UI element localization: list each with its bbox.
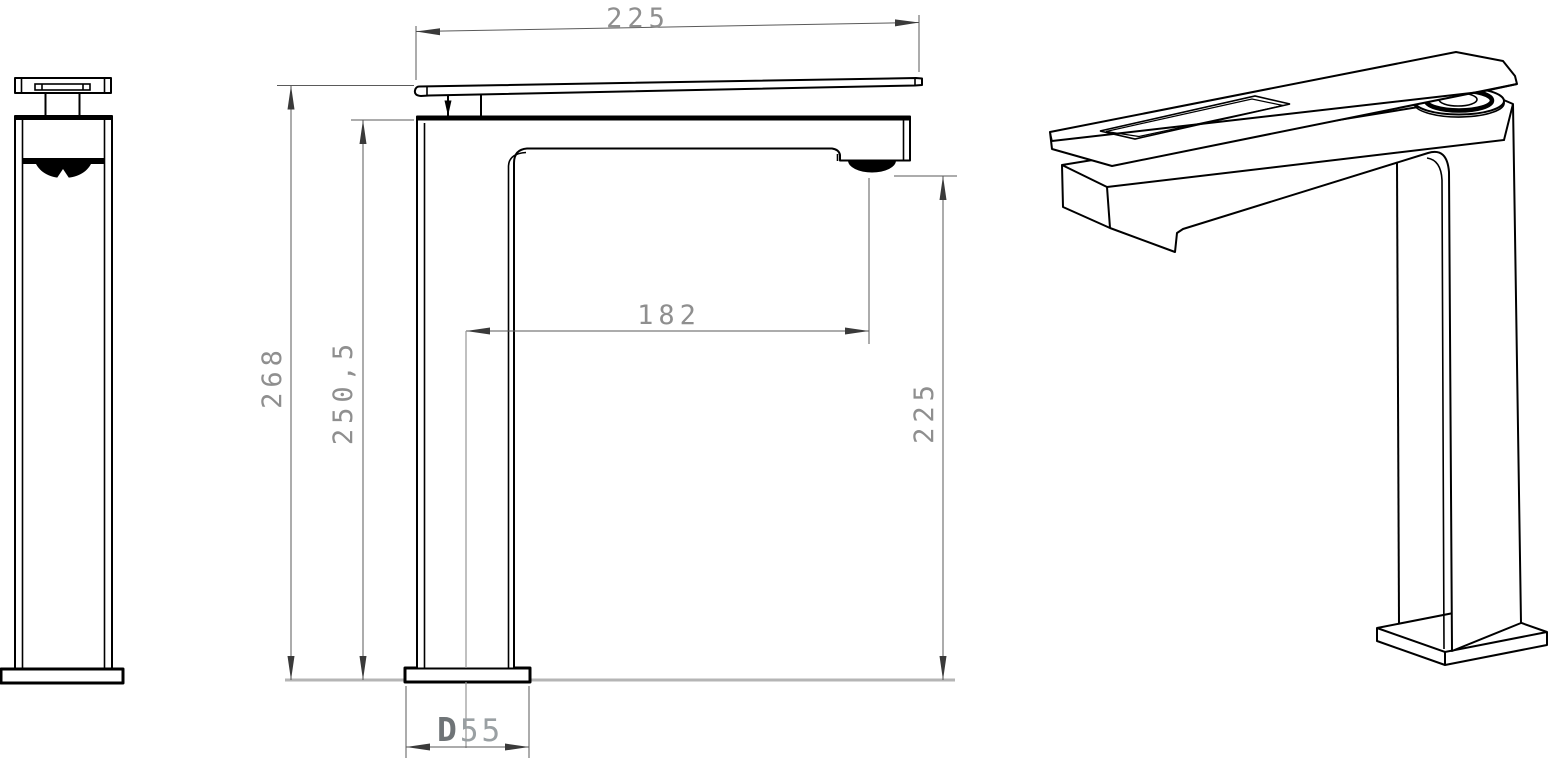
- arrowhead-down: [940, 656, 947, 680]
- front-handle-lever: [415, 78, 922, 96]
- arrowhead-right: [505, 744, 529, 751]
- dim-spout-reach: 182: [466, 178, 869, 344]
- dim-label-base-width: D55: [437, 710, 503, 749]
- faucet-technical-drawing: 225 268 250,5 182 225: [0, 0, 1550, 759]
- iso-column-near-edge-inner: [1427, 158, 1444, 649]
- dim-label-overall-height: 268: [257, 345, 288, 409]
- front-aerator: [848, 161, 896, 173]
- arrowhead-right: [845, 328, 869, 335]
- arrowhead-up: [288, 86, 295, 110]
- front-stem-arrow: [445, 101, 452, 117]
- arrowhead-right: [895, 19, 919, 26]
- isometric-view: [1050, 52, 1547, 665]
- front-view: [405, 78, 922, 682]
- arrowhead-down: [360, 656, 367, 680]
- dim-label-base-prefix: D: [437, 710, 458, 749]
- iso-body-silhouette: [1062, 95, 1521, 651]
- side-body: [15, 116, 112, 669]
- side-spout-band: [22, 158, 105, 164]
- dim-base-width: D55: [406, 686, 529, 758]
- arrowhead-up: [940, 176, 947, 200]
- front-base-plate: [405, 668, 530, 682]
- arrowhead-down: [288, 656, 295, 680]
- arrowhead-left: [406, 744, 430, 751]
- front-body: [417, 117, 910, 669]
- dim-label-spout-reach: 182: [637, 300, 701, 331]
- dim-label-outlet-height: 225: [909, 380, 940, 444]
- iso-column-far-edge: [1397, 163, 1399, 624]
- dim-label-top-width: 225: [606, 3, 670, 34]
- side-view: [1, 78, 123, 683]
- dim-label-base-value: 55: [460, 713, 503, 749]
- dim-outlet-height: 225: [894, 176, 957, 680]
- drawing-canvas: 225 268 250,5 182 225: [0, 0, 1550, 759]
- side-base-plate: [1, 669, 123, 683]
- dim-label-spout-top-height: 250,5: [328, 339, 359, 445]
- arrowhead-up: [360, 120, 367, 144]
- arrowhead-left: [416, 28, 440, 35]
- dim-spout-top-height: 250,5: [328, 120, 414, 680]
- iso-body: [1062, 95, 1521, 651]
- dim-top-width: 225: [416, 3, 919, 80]
